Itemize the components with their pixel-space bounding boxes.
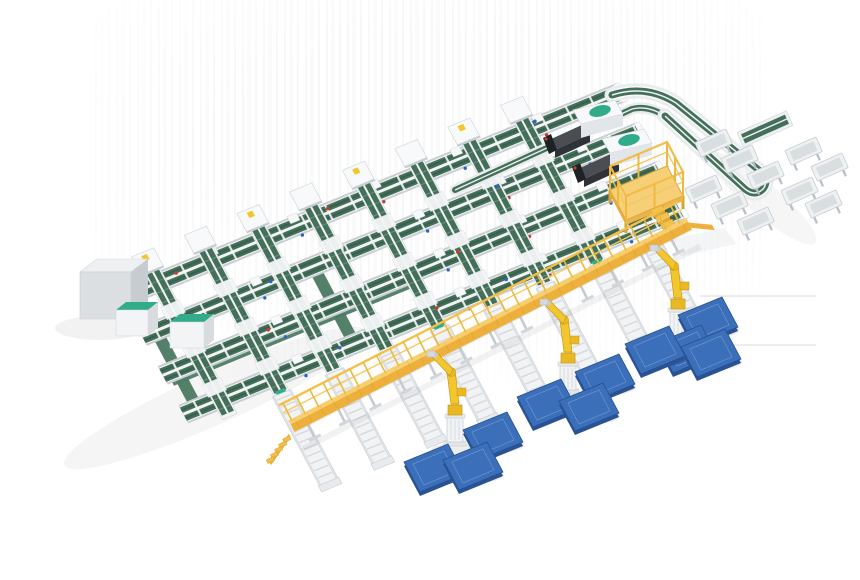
control-cabinet [116,302,158,336]
stub-conveyor [737,111,793,148]
tray-station [811,153,851,188]
factory-3d-render [0,0,860,580]
control-cabinet [170,314,214,348]
artifact-line [700,296,816,297]
render-canvas [0,0,860,580]
